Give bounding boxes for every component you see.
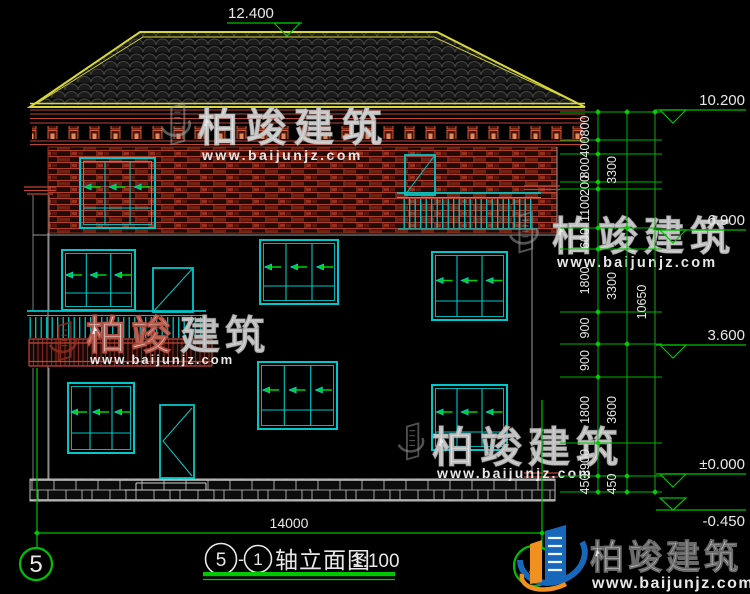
logo-url-text: www.baijunjz.com <box>591 575 750 592</box>
elevation-marker-floor2: 3.600 <box>656 327 746 358</box>
elevation-label: 10.200 <box>699 92 745 109</box>
watermark-url: www.baijunjz.com <box>436 465 593 481</box>
door-f1-entry <box>160 405 194 478</box>
elevation-label: -0.450 <box>702 513 745 530</box>
dim-label: 3600 <box>605 396 619 424</box>
window-f2-farleft <box>62 250 135 310</box>
elevation-label: 3.600 <box>707 327 745 344</box>
axis-bubble-label: 5 <box>29 551 42 578</box>
window-f2-right <box>432 252 507 320</box>
logo-brand-text: 柏竣建筑 <box>590 538 742 577</box>
elevation-label: ±0.000 <box>699 456 745 473</box>
elevation-marker-base: -0.450 <box>656 498 746 530</box>
elevation-marker-eave: 10.200 <box>656 92 746 123</box>
dim-label: 200 <box>578 175 592 196</box>
dim-label: 3300 <box>605 272 619 300</box>
watermark-brand: 柏竣建筑 <box>198 106 390 150</box>
elevation-drawing-canvas: 柏竣建筑 www.baijunjz.com 柏竣 建筑 www.baijunjz… <box>0 0 750 594</box>
dim-label: 1800 <box>578 396 592 424</box>
door-f2-balcony <box>153 268 193 312</box>
dim-label-total: 10650 <box>635 285 649 320</box>
elevation-label: 6.900 <box>707 212 745 229</box>
hip-roof <box>30 32 585 107</box>
title-scale: 1:100 <box>352 551 400 572</box>
title-underline <box>203 572 395 576</box>
logo-tower-orange <box>530 540 542 584</box>
dim-label: 900 <box>578 350 592 371</box>
title-axis-end: 1 <box>253 550 262 569</box>
title-separator: - <box>238 549 244 569</box>
dim-label: 1800 <box>578 267 592 295</box>
stone-plinth <box>30 479 555 501</box>
brand-logo: 柏竣建筑 www.baijunjz.com <box>520 525 750 592</box>
dim-label: 600 <box>578 228 592 249</box>
bottom-width-dimension: 14000 <box>37 515 542 533</box>
watermark-building-icon <box>399 423 423 459</box>
dim-label: 900 <box>578 449 592 470</box>
elevation-label: 12.400 <box>228 5 274 22</box>
title-axis-start: 5 <box>216 550 227 571</box>
watermark-url: www.baijunjz.com <box>201 147 363 163</box>
drawing-title: 5 - 1 轴立面图 1:100 <box>203 544 400 580</box>
watermark-url: www.baijunjz.com <box>89 352 234 367</box>
dim-label: 450 <box>605 474 619 495</box>
cad-elevation-sheet: 柏竣建筑 www.baijunjz.com 柏竣 建筑 www.baijunjz… <box>0 0 750 594</box>
axis-left: 5 <box>20 368 52 580</box>
window-f2-center <box>260 240 338 304</box>
dim-label: 800 <box>578 116 592 137</box>
dim-label: 400 <box>578 137 592 158</box>
dim-label: 1100 <box>578 195 592 222</box>
window-f1-center <box>258 362 337 429</box>
dim-label: 3300 <box>605 156 619 184</box>
elevation-marker-ground: ±0.000 <box>656 456 746 487</box>
window-f1-left <box>68 383 134 453</box>
dim-label-width: 14000 <box>270 515 309 531</box>
dim-label: 900 <box>578 318 592 339</box>
dim-label: 450 <box>578 474 592 495</box>
watermark-brand: 柏竣建筑 <box>432 424 624 471</box>
